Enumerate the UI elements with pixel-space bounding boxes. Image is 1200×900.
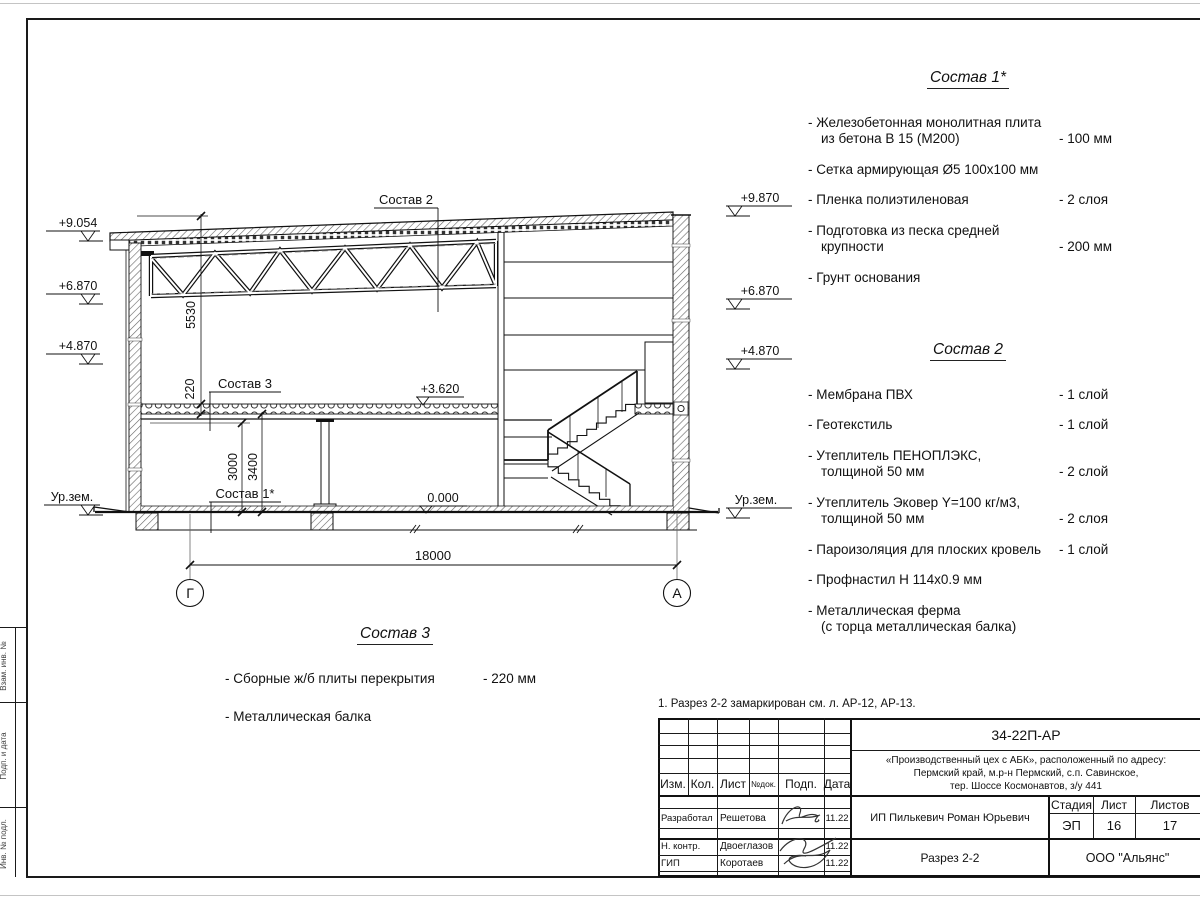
tb-project-address: «Производственный цех с АБК», расположен…: [852, 751, 1200, 795]
left-wall: [129, 243, 141, 512]
tb-section-title: Разрез 2-2: [852, 840, 1048, 875]
sostav1-list: Состав 1* - Железобетонная монолитная пл…: [808, 70, 1128, 300]
foundation-blocks: [136, 513, 689, 530]
level-right-2: +6.870: [741, 284, 780, 298]
sostav2-title: Состав 2: [808, 342, 1128, 359]
tb-stage-value: ЭП: [1050, 813, 1093, 838]
axis-lines: [190, 514, 677, 579]
tb-line: [658, 875, 1200, 877]
tb-header-podp: Подп.: [778, 773, 824, 795]
level-ground-floor: 0.000: [427, 491, 458, 505]
slab-bearing-core: [678, 405, 684, 411]
tb-name-developer: Решетова: [717, 808, 781, 828]
level-right-3: +4.870: [741, 344, 780, 358]
list-item: - Металлическая балка: [225, 709, 565, 726]
tb-company: ООО "Альянс": [1050, 840, 1200, 875]
list-item: - Подготовка из песка средней крупности-…: [808, 223, 1128, 256]
tb-line: [658, 745, 850, 746]
tb-role-ncontrol: Н. контр.: [658, 838, 720, 855]
level-left-1: +9.054: [59, 216, 98, 230]
dim-3400: 3400: [246, 453, 260, 481]
tb-header-data: Дата: [824, 773, 850, 795]
signature-strokes: [776, 796, 852, 875]
sostav3-list: Состав 3 - Сборные ж/б плиты перекрытия-…: [225, 626, 565, 740]
signature-ncontrol: [780, 838, 836, 868]
tb-doc-number: 34-22П-АР: [852, 720, 1200, 750]
floor-slab: [141, 404, 498, 414]
level-left-3: +4.870: [59, 339, 98, 353]
dim-3000: 3000: [226, 453, 240, 481]
sostav3-title: Состав 3: [225, 626, 565, 643]
axis-letter-right: А: [672, 585, 682, 601]
list-item: - Утеплитель ПЕНОПЛЭКС, толщиной 50 мм- …: [808, 448, 1128, 481]
right-wall: [673, 215, 689, 512]
staircase: [504, 371, 639, 515]
tb-sheets-label: Листов: [1135, 797, 1200, 813]
list-item: - Геотекстиль- 1 слой: [808, 417, 1128, 434]
level-left-2: +6.870: [59, 279, 98, 293]
tb-role-gip: ГИП: [658, 855, 720, 871]
list-item: - Сетка армирующая Ø5 100х100 мм: [808, 162, 1128, 179]
tb-sheet-label: Лист: [1093, 797, 1135, 813]
tb-role-developer: Разработал: [658, 808, 720, 828]
tb-name-ncontrol: Двоеглазов: [717, 838, 781, 855]
list-item: - Мембрана ПВХ- 1 слой: [808, 387, 1128, 404]
title-block: Изм. Кол. Лист №док. Подп. Дата Разработ…: [658, 718, 1200, 877]
list-item: - Металлическая ферма (с торца металличе…: [808, 603, 1128, 636]
break-marks: [410, 525, 583, 533]
callout-floor: Состав 1*: [216, 486, 275, 501]
axis-letter-left: Г: [186, 585, 194, 601]
tb-client: ИП Пилькевич Роман Юрьевич: [852, 797, 1048, 838]
signature-developer: [782, 807, 820, 824]
tb-header-ndok: №док.: [749, 773, 778, 795]
list-item: - Профнастил Н 114х0.9 мм: [808, 572, 1128, 589]
list-item: - Пленка полиэтиленовая- 2 слоя: [808, 192, 1128, 209]
sostav1-title: Состав 1*: [808, 70, 1128, 87]
sostav2-list: Состав 2 - Мембрана ПВХ- 1 слой - Геотек…: [808, 342, 1128, 650]
list-item: - Утеплитель Эковер Y=100 кг/м3, толщино…: [808, 495, 1128, 528]
tb-stage-label: Стадия: [1050, 797, 1093, 813]
upper-flight-steps: [548, 404, 635, 460]
tb-sheets-value: 17: [1135, 813, 1200, 838]
tb-header-izm: Изм.: [658, 773, 688, 795]
tb-name-gip: Коротаев: [717, 855, 781, 871]
sheet-note: 1. Разрез 2-2 замаркирован см. л. АР-12,…: [658, 698, 916, 710]
hall-column: [314, 419, 336, 512]
list-item: - Грунт основания: [808, 270, 1128, 287]
list-item: - Сборные ж/б плиты перекрытия- 220 мм: [225, 671, 565, 688]
stair-railings: [548, 371, 637, 512]
tb-header-kol: Кол.: [688, 773, 717, 795]
tb-sheet-value: 16: [1093, 813, 1135, 838]
drawing-sheet: { "sheet": { "note": "1. Разрез 2-2 зама…: [0, 0, 1200, 900]
dim-220: 220: [183, 379, 197, 400]
list-item: - Железобетонная монолитная плита из бет…: [808, 115, 1128, 148]
list-item: - Пароизоляция для плоских кровель- 1 сл…: [808, 542, 1128, 559]
roof-edge-cap: [110, 240, 129, 250]
second-floor-door: [645, 342, 673, 403]
tb-line: [658, 733, 850, 734]
lower-flight-steps: [548, 460, 630, 512]
level-second-floor: +3.620: [421, 382, 460, 396]
level-right-1: +9.870: [741, 191, 780, 205]
level-right-ground: Ур.зем.: [735, 493, 777, 507]
dim-18000: 18000: [415, 548, 451, 563]
tb-line: [658, 758, 850, 759]
level-left-ground: Ур.зем.: [51, 490, 93, 504]
roof-truss: [151, 241, 496, 296]
callout-roof: Состав 2: [379, 192, 433, 207]
tb-header-list: Лист: [717, 773, 749, 795]
callout-slab: Состав 3: [218, 376, 272, 391]
dim-5530: 5530: [184, 301, 198, 329]
floor-slab: [635, 404, 673, 414]
